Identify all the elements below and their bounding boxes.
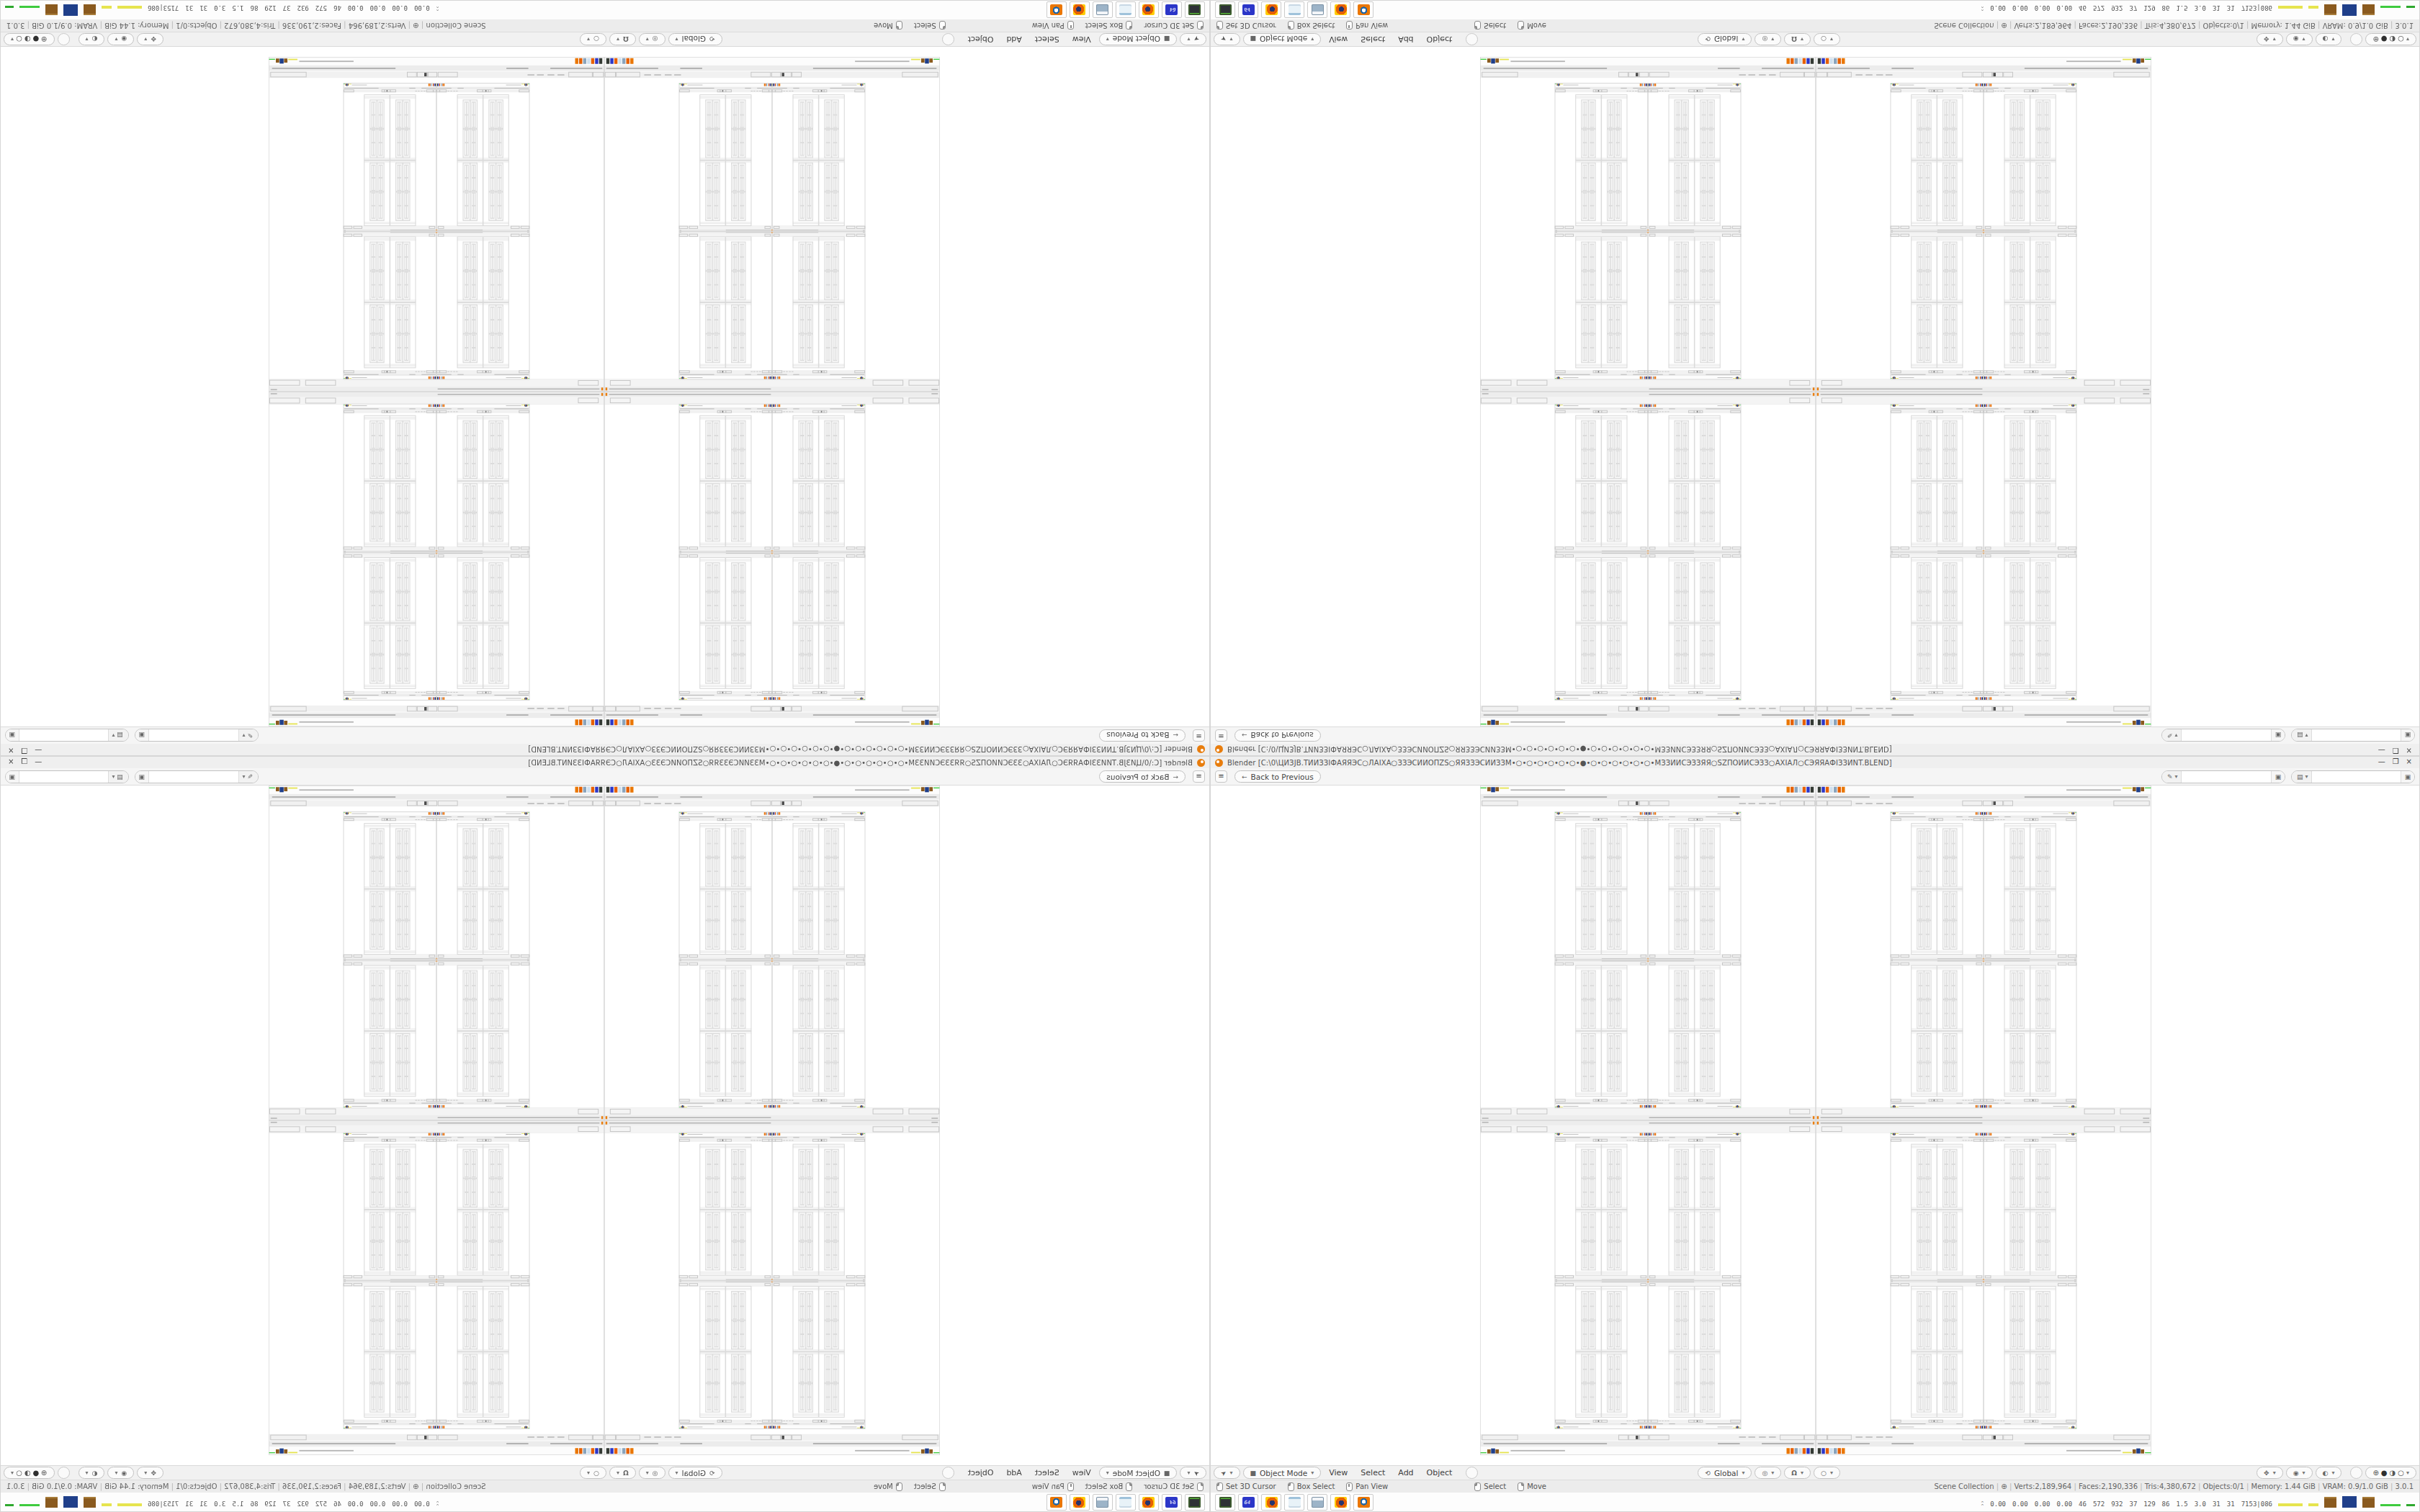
verts-count: Verts:2,189,964 xyxy=(349,22,411,30)
fullscreen-topbar: ≡ ← Back to Previous ✎▾ ▣ ▤▾ ▣ xyxy=(1211,768,2419,786)
viewport-3d[interactable] xyxy=(1,47,1209,726)
datablock-selectors: ✎▾ ▣ ▤▾ ▣ xyxy=(5,729,259,742)
viewport-3d[interactable] xyxy=(1,786,1209,1465)
solid-shading-icon[interactable]: ● xyxy=(32,35,39,43)
firefox-app-icon[interactable] xyxy=(1139,1494,1159,1511)
snap-toggle[interactable]: Ω ▾ xyxy=(1784,1467,1811,1479)
chevron-down-icon: ▾ xyxy=(2406,36,2409,42)
status-bar: Set 3D Cursor Box Select Pan View Select… xyxy=(1,19,1209,32)
menu-icon[interactable]: ≡ xyxy=(1193,770,1205,783)
wireframe-shading-icon[interactable]: ⊕ xyxy=(41,35,47,43)
hint-set-3d-cursor: Set 3D Cursor xyxy=(1144,1482,1204,1491)
tris-count: Tris:4,380,672 xyxy=(224,22,280,30)
pivot-icon: ◎ xyxy=(653,36,658,43)
image-name-field[interactable] xyxy=(2312,730,2401,742)
proportional-editing-toggle[interactable]: ○ ▾ xyxy=(580,33,606,45)
objects-count: Objects:0/1 xyxy=(2198,1482,2244,1490)
chevron-down-icon: ▾ xyxy=(1742,36,1744,42)
chevron-down-icon: ▾ xyxy=(144,36,147,42)
copy-datablock-icon[interactable]: ▣ xyxy=(2271,730,2285,742)
chevron-down-icon: ▾ xyxy=(11,36,14,42)
chevron-down-icon: ▾ xyxy=(676,1470,678,1476)
notepad-app-icon[interactable] xyxy=(1116,1494,1136,1511)
rendered-shading-icon[interactable]: ○ xyxy=(2398,35,2404,43)
overlays-icon: ◉ xyxy=(122,36,127,43)
window-titlebar: Blender [C:\0\ЦИЗЈВ.ТИИЗЗІФАЯЯЭС○ЛАІХА○З… xyxy=(1,757,1209,768)
close-button[interactable]: × xyxy=(2406,747,2412,755)
minimize-button[interactable]: — xyxy=(2378,757,2385,765)
back-arrow-icon: ← xyxy=(1173,773,1178,780)
hint-move: Move xyxy=(874,1482,902,1491)
scene-collection-label: Scene Collection xyxy=(1934,1482,1994,1490)
solid-shading-icon[interactable]: ● xyxy=(32,1469,39,1477)
restore-button[interactable]: ❐ xyxy=(21,757,27,765)
menu-object[interactable]: Object xyxy=(968,35,994,44)
chevron-down-icon: ▾ xyxy=(2406,1470,2409,1476)
image-datablock-selector[interactable]: ▤▾ ▣ xyxy=(5,770,129,783)
overlays-icon: ◉ xyxy=(2293,1470,2299,1477)
image-name-field[interactable] xyxy=(2312,771,2401,783)
shading-mode-group[interactable]: ⊕ ● ◑ ○ ▾ xyxy=(2365,33,2416,45)
screen-capture-app-icon[interactable] xyxy=(1215,2,1235,19)
transform-orientation-dropdown[interactable]: ⟲ Global ▾ xyxy=(1698,33,1752,45)
xray-toggle[interactable]: ◐ ▾ xyxy=(2316,33,2342,45)
brush-name-field[interactable] xyxy=(2182,730,2271,742)
floppy-64-app-icon[interactable] xyxy=(1238,1494,1258,1511)
menu-icon[interactable]: ≡ xyxy=(1193,729,1205,742)
overlays-toggle[interactable]: ◉ ▾ xyxy=(107,33,134,45)
back-arrow-icon: ← xyxy=(1242,732,1247,739)
gizmo-toggle[interactable]: ✥ ▾ xyxy=(137,33,163,45)
chevron-down-icon: ▾ xyxy=(242,732,245,739)
performance-overlay: ⌃⌃ 0.000.00 0.000.00 46572 93237 12986 1… xyxy=(5,4,440,16)
rendered-shading-icon[interactable]: ○ xyxy=(16,1469,22,1477)
gizmo-icon: ✥ xyxy=(151,36,156,43)
xray-icon: ◐ xyxy=(2323,36,2329,43)
blender-app-icon[interactable] xyxy=(1047,1494,1067,1511)
object-mode-icon: ■ xyxy=(1164,1470,1170,1477)
rendered-shading-icon[interactable]: ○ xyxy=(2398,1469,2404,1477)
image-icon: ▤ xyxy=(117,773,123,780)
mode-dropdown[interactable]: ■ Object Mode ▾ xyxy=(1099,33,1178,45)
back-arrow-icon: ← xyxy=(1242,773,1247,780)
shading-mode-group[interactable]: ⊕ ● ◑ ○ ▾ xyxy=(4,1467,55,1479)
recursive-screenshot-pattern xyxy=(269,57,940,726)
xray-icon: ◐ xyxy=(92,36,98,43)
chevron-down-icon: ▾ xyxy=(587,36,590,42)
xray-toggle[interactable]: ◐ ▾ xyxy=(79,33,105,45)
hint-box-select: Box Select xyxy=(1085,1482,1133,1491)
screen-capture-app-icon[interactable] xyxy=(1185,1494,1205,1511)
wireframe-shading-icon[interactable]: ⊕ xyxy=(2372,35,2378,43)
material-shading-icon[interactable]: ◑ xyxy=(24,1469,31,1477)
mode-dropdown[interactable]: ■ Object Mode ▾ xyxy=(1099,1467,1178,1479)
overlays-toggle[interactable]: ◉ ▾ xyxy=(2286,1467,2313,1479)
chevron-down-icon: ▾ xyxy=(646,1470,649,1476)
shading-circle[interactable] xyxy=(58,33,70,45)
pivot-icon: ◎ xyxy=(1762,1470,1767,1477)
window-title: Blender [C:\0\ЦИЗЈВ.ТИИЗЗІФАЯЯЭС○ЛАІХА○З… xyxy=(528,746,1193,754)
overlays-toggle[interactable]: ◉ ▾ xyxy=(107,1467,134,1479)
firefox-app-icon[interactable] xyxy=(1139,2,1159,19)
calculator-app-icon[interactable] xyxy=(1093,1494,1113,1511)
menu-add[interactable]: Add xyxy=(1006,1468,1021,1477)
mode-transfer-circle[interactable] xyxy=(942,1467,954,1479)
brush-name-field[interactable] xyxy=(149,730,238,742)
brush-datablock-selector[interactable]: ✎▾ ▣ xyxy=(2161,770,2285,783)
material-shading-icon[interactable]: ◑ xyxy=(2390,35,2396,43)
copy-datablock-icon[interactable]: ▣ xyxy=(2401,730,2414,742)
hint-move: Move xyxy=(1518,1482,1546,1491)
left-mouse-icon xyxy=(1197,22,1204,30)
blender-window: Blender [C:\0\ЦИЗЈВ.ТИИЗЗІФАЯЯЭС○ЛАІХА○З… xyxy=(1210,0,2420,756)
mode-dropdown[interactable]: ■ Object Mode ▾ xyxy=(1243,1467,1322,1479)
firefox-app-icon[interactable] xyxy=(1070,2,1090,19)
orientation-icon: ⟲ xyxy=(709,1470,715,1477)
copy-datablock-icon[interactable]: ▣ xyxy=(6,730,19,742)
datablock-selectors: ✎▾ ▣ ▤▾ ▣ xyxy=(5,770,259,783)
proportional-icon: ○ xyxy=(1821,1470,1827,1477)
shading-mode-group[interactable]: ⊕ ● ◑ ○ ▾ xyxy=(4,33,55,45)
chevron-down-icon: ▾ xyxy=(86,1470,89,1476)
proportional-editing-toggle[interactable]: ○ ▾ xyxy=(1814,1467,1840,1479)
left-mouse-icon xyxy=(939,22,946,30)
left-mouse-icon xyxy=(1126,22,1132,30)
window-titlebar: Blender [C:\0\ЦИЗЈВ.ТИИЗЗІФАЯЯЭС○ЛАІХА○З… xyxy=(1,744,1209,755)
chevron-down-icon: ▾ xyxy=(1106,1470,1109,1476)
blender-app-icon[interactable] xyxy=(1353,2,1373,19)
firefox-app-icon[interactable] xyxy=(1261,1494,1281,1511)
collapse-chevrons-icon: ⌃⌃ xyxy=(436,1502,440,1508)
tray-brown-block xyxy=(2324,4,2336,15)
wireframe-shading-icon[interactable]: ⊕ xyxy=(41,1469,47,1477)
copy-datablock-icon[interactable]: ▣ xyxy=(2271,771,2285,783)
fullscreen-topbar: ≡ ← Back to Previous ✎▾ ▣ ▤▾ ▣ xyxy=(1,768,1209,786)
left-mouse-icon xyxy=(1288,1482,1294,1491)
status-bar: Set 3D Cursor Box Select Pan View Select… xyxy=(1211,19,2419,32)
tray-brown-block xyxy=(84,1497,96,1508)
overlays-toggle[interactable]: ◉ ▾ xyxy=(2286,33,2313,45)
middle-mouse-icon xyxy=(1067,1482,1074,1491)
rendered-shading-icon[interactable]: ○ xyxy=(16,35,22,43)
tris-count: Tris:4,380,672 xyxy=(2140,22,2196,30)
desktop-taskbar: ⌃⌃ 0.000.00 0.000.00 46572 93237 12986 1… xyxy=(1211,1493,2419,1511)
menu-view[interactable]: View xyxy=(1072,35,1091,44)
active-tool-dropdown[interactable]: ➤ ▾ xyxy=(1214,1467,1240,1479)
snap-toggle[interactable]: Ω ▾ xyxy=(609,33,636,45)
verts-count: Verts:2,189,964 xyxy=(2009,22,2071,30)
chevron-down-icon: ▾ xyxy=(617,36,619,42)
menu-add[interactable]: Add xyxy=(1398,35,1413,44)
notepad-app-icon[interactable] xyxy=(1116,2,1136,19)
copy-datablock-icon[interactable]: ▣ xyxy=(135,771,149,783)
quadrant-bottom-right-original: Blender [C:\0\ЦИЗЈВ.ТИИЗЗІФАЯЯЭС○ЛАІХА○З… xyxy=(1210,756,2420,1512)
chevron-down-icon: ▾ xyxy=(1311,36,1314,42)
material-shading-icon[interactable]: ◑ xyxy=(24,35,31,43)
back-to-previous-button[interactable]: ← Back to Previous xyxy=(1234,729,1321,742)
window-titlebar: Blender [C:\0\ЦИЗЈВ.ТИИЗЗІФАЯЯЭС○ЛАІХА○З… xyxy=(1211,744,2419,755)
chevron-down-icon: ▾ xyxy=(2273,36,2276,42)
quadrant-top-right-flipped: Blender [C:\0\ЦИЗЈВ.ТИИЗЗІФАЯЯЭС○ЛАІХА○З… xyxy=(1210,0,2420,756)
vram-usage: VRAM: 0.9/1.0 GiB xyxy=(2318,1482,2388,1490)
floppy-64-app-icon[interactable] xyxy=(1162,1494,1182,1511)
viewport-3d[interactable] xyxy=(1211,47,2419,726)
collapse-chevrons-icon: ⌃⌃ xyxy=(436,4,440,10)
close-button[interactable]: × xyxy=(8,757,14,765)
performance-overlay: ⌃⌃ 0.000.00 0.000.00 46572 93237 12986 1… xyxy=(5,1496,440,1508)
copy-datablock-icon[interactable]: ▣ xyxy=(2401,771,2414,783)
datablock-selectors: ✎▾ ▣ ▤▾ ▣ xyxy=(2161,729,2415,742)
tray-yellow-bar xyxy=(117,1503,142,1506)
window-controls: — ❐ × xyxy=(2378,747,2416,755)
back-to-previous-button[interactable]: ← Back to Previous xyxy=(1234,770,1321,783)
performance-stats: 0.000.00 0.000.00 46572 93237 12986 1.53… xyxy=(148,1500,430,1508)
faces-count: Faces:2,190,336 xyxy=(2074,1482,2138,1490)
orientation-icon: ⟲ xyxy=(709,36,715,43)
chevron-down-icon: ▾ xyxy=(115,36,117,42)
menu-add[interactable]: Add xyxy=(1006,35,1021,44)
menu-icon[interactable]: ≡ xyxy=(1215,770,1227,783)
object-mode-icon: ■ xyxy=(1250,36,1257,43)
menu-select[interactable]: Select xyxy=(1361,35,1385,44)
transform-orientation-dropdown[interactable]: ⟲ Global ▾ xyxy=(1698,1467,1752,1479)
brush-datablock-selector[interactable]: ✎▾ ▣ xyxy=(2161,729,2285,742)
mode-dropdown[interactable]: ■ Object Mode ▾ xyxy=(1243,33,1322,45)
recursive-screenshot-pattern xyxy=(1480,786,2151,1455)
image-datablock-selector[interactable]: ▤▾ ▣ xyxy=(2291,770,2415,783)
snap-toggle[interactable]: Ω ▾ xyxy=(1784,33,1811,45)
menu-icon[interactable]: ≡ xyxy=(1215,729,1227,742)
floppy-64-app-icon[interactable] xyxy=(1162,2,1182,19)
chevron-down-icon: ▾ xyxy=(1830,1470,1833,1476)
chevron-down-icon: ▾ xyxy=(11,1470,14,1476)
floppy-64-app-icon[interactable] xyxy=(1238,2,1258,19)
objects-count: Objects:0/1 xyxy=(2198,22,2244,30)
menu-object[interactable]: Object xyxy=(1427,1468,1453,1477)
calculator-app-icon[interactable] xyxy=(1307,2,1327,19)
chevron-down-icon: ▾ xyxy=(2175,732,2178,739)
object-mode-icon: ■ xyxy=(1250,1470,1257,1477)
blender-window: Blender [C:\0\ЦИЗЈВ.ТИИЗЗІФАЯЯЭС○ЛАІХА○З… xyxy=(0,0,1210,756)
menu-select[interactable]: Select xyxy=(1361,1468,1385,1477)
mode-transfer-circle[interactable] xyxy=(942,33,954,45)
brush-datablock-selector[interactable]: ✎▾ ▣ xyxy=(135,729,259,742)
shading-circle[interactable] xyxy=(58,1467,70,1479)
fullscreen-topbar: ≡ ← Back to Previous ✎▾ ▣ ▤▾ ▣ xyxy=(1211,726,2419,744)
restore-button[interactable]: ❐ xyxy=(2393,757,2399,765)
tray-yellow-bar xyxy=(117,6,142,9)
menu-add[interactable]: Add xyxy=(1398,1468,1413,1477)
mode-transfer-circle[interactable] xyxy=(1466,33,1478,45)
viewport-header: ➤ ▾ ■ Object Mode ▾ View Select Add Obje… xyxy=(1,32,1209,47)
collection-icon: ⊕ xyxy=(1996,1482,2007,1490)
material-shading-icon[interactable]: ◑ xyxy=(2390,1469,2396,1477)
blender-window: Blender [C:\0\ЦИЗЈВ.ТИИЗЗІФАЯЯЭС○ЛАІХА○З… xyxy=(0,756,1210,1512)
xray-icon: ◐ xyxy=(2323,1470,2329,1477)
image-name-field[interactable] xyxy=(19,730,108,742)
minimize-button[interactable]: — xyxy=(35,747,42,755)
memory-usage: Memory: 1.44 GiB xyxy=(104,1482,174,1490)
hint-select: Select xyxy=(1474,22,1506,30)
tray-green-bar xyxy=(2380,6,2401,8)
restore-button[interactable]: ❐ xyxy=(2393,747,2399,755)
brush-name-field[interactable] xyxy=(149,771,238,783)
menu-view[interactable]: View xyxy=(1072,1468,1091,1477)
pivot-point-dropdown[interactable]: ◎ ▾ xyxy=(639,33,665,45)
scene-collection-label: Scene Collection xyxy=(1934,22,1994,30)
menu-view[interactable]: View xyxy=(1329,35,1348,44)
menu-object[interactable]: Object xyxy=(1427,35,1453,44)
window-titlebar: Blender [C:\0\ЦИЗЈВ.ТИИЗЗІФАЯЯЭС○ЛАІХА○З… xyxy=(1211,757,2419,768)
back-to-previous-button[interactable]: ← Back to Previous xyxy=(1099,770,1186,783)
image-name-field[interactable] xyxy=(19,771,108,783)
collection-icon: ⊕ xyxy=(1996,22,2007,30)
pivot-icon: ◎ xyxy=(653,1470,658,1477)
chevron-down-icon: ▾ xyxy=(1742,1470,1744,1476)
image-datablock-selector[interactable]: ▤▾ ▣ xyxy=(5,729,129,742)
tray-yellow-bar xyxy=(2308,1503,2318,1506)
hint-move: Move xyxy=(1518,22,1546,30)
tray-green-bar xyxy=(5,6,14,8)
menu-object[interactable]: Object xyxy=(968,1468,994,1477)
verts-count: Verts:2,189,964 xyxy=(2009,1482,2071,1490)
hint-pan-view: Pan View xyxy=(1346,1482,1388,1491)
copy-datablock-icon[interactable]: ▣ xyxy=(6,771,19,783)
xray-toggle[interactable]: ◐ ▾ xyxy=(2316,1467,2342,1479)
minimize-button[interactable]: — xyxy=(2378,747,2385,755)
scene-statistics: Scene Collection ⊕ Verts:2,189,964 Faces… xyxy=(1934,22,2414,30)
gizmo-toggle[interactable]: ✥ ▾ xyxy=(2257,33,2283,45)
minimize-button[interactable]: — xyxy=(35,757,42,765)
screen-capture-app-icon[interactable] xyxy=(1215,1494,1235,1511)
kaleidoscope-screenshot: Blender [C:\0\ЦИЗЈВ.ТИИЗЗІФАЯЯЭС○ЛАІХА○З… xyxy=(0,0,2420,1512)
screen-capture-app-icon[interactable] xyxy=(1185,2,1205,19)
memory-usage: Memory: 1.44 GiB xyxy=(2246,1482,2316,1490)
cursor-tool-icon: ➤ xyxy=(1219,1468,1228,1477)
image-datablock-selector[interactable]: ▤▾ ▣ xyxy=(2291,729,2415,742)
overlays-icon: ◉ xyxy=(122,1470,127,1477)
menu-select[interactable]: Select xyxy=(1035,1468,1059,1477)
chevron-down-icon: ▾ xyxy=(115,1470,117,1476)
mode-transfer-circle[interactable] xyxy=(1466,1467,1478,1479)
gizmo-icon: ✥ xyxy=(2264,36,2269,43)
brush-icon: ✎ xyxy=(247,732,253,739)
quadrant-bottom-left-mirrored: Blender [C:\0\ЦИЗЈВ.ТИИЗЗІФАЯЯЭС○ЛАІХА○З… xyxy=(0,756,1210,1512)
chevron-down-icon: ▾ xyxy=(1771,1470,1774,1476)
hint-pan-view: Pan View xyxy=(1032,22,1074,30)
recursive-screenshot-pattern xyxy=(269,786,940,1455)
menu-select[interactable]: Select xyxy=(1035,35,1059,44)
chevron-down-icon: ▾ xyxy=(112,732,115,739)
pivot-point-dropdown[interactable]: ◎ ▾ xyxy=(639,1467,665,1479)
performance-stats: 0.000.00 0.000.00 46572 93237 12986 1.53… xyxy=(1990,1500,2272,1508)
tris-count: Tris:4,380,672 xyxy=(2140,1482,2196,1490)
wireframe-shading-icon[interactable]: ⊕ xyxy=(2372,1469,2378,1477)
proportional-editing-toggle[interactable]: ○ ▾ xyxy=(580,1467,606,1479)
brush-name-field[interactable] xyxy=(2182,771,2271,783)
tris-count: Tris:4,380,672 xyxy=(224,1482,280,1490)
active-tool-dropdown[interactable]: ➤ ▾ xyxy=(1180,33,1206,45)
pivot-point-dropdown[interactable]: ◎ ▾ xyxy=(1754,33,1781,45)
notepad-app-icon[interactable] xyxy=(1284,1494,1304,1511)
left-mouse-icon xyxy=(1474,22,1481,30)
quadrant-top-left-flipped: Blender [C:\0\ЦИЗЈВ.ТИИЗЗІФАЯЯЭС○ЛАІХА○З… xyxy=(0,0,1210,756)
hint-select: Select xyxy=(914,22,946,30)
tray-green-bar xyxy=(5,1504,14,1506)
tray-green-bar xyxy=(2406,1504,2415,1506)
restore-button[interactable]: ❐ xyxy=(21,747,27,755)
firefox-app-icon[interactable] xyxy=(1261,2,1281,19)
performance-stats: 0.000.00 0.000.00 46572 93237 12986 1.53… xyxy=(148,4,430,12)
tray-brown-block xyxy=(2362,1497,2375,1508)
close-button[interactable]: × xyxy=(8,747,14,755)
shading-mode-group[interactable]: ⊕ ● ◑ ○ ▾ xyxy=(2365,1467,2416,1479)
overlays-icon: ◉ xyxy=(2293,36,2299,43)
blender-logo-icon xyxy=(1197,746,1205,754)
collection-icon: ⊕ xyxy=(413,22,423,30)
left-mouse-icon xyxy=(939,1482,946,1491)
memory-usage: Memory: 1.44 GiB xyxy=(2246,22,2316,30)
back-to-previous-button[interactable]: ← Back to Previous xyxy=(1099,729,1186,742)
menu-view[interactable]: View xyxy=(1329,1468,1348,1477)
viewport-3d[interactable] xyxy=(1211,786,2419,1465)
solid-shading-icon[interactable]: ● xyxy=(2381,35,2388,43)
objects-count: Objects:0/1 xyxy=(176,22,222,30)
chevron-down-icon: ▾ xyxy=(587,1470,590,1476)
calculator-app-icon[interactable] xyxy=(1307,1494,1327,1511)
xray-toggle[interactable]: ◐ ▾ xyxy=(79,1467,105,1479)
close-button[interactable]: × xyxy=(2406,757,2412,765)
cursor-tool-icon: ➤ xyxy=(1219,35,1228,44)
chevron-down-icon: ▾ xyxy=(144,1470,147,1476)
blender-app-icon[interactable] xyxy=(1047,2,1067,19)
snap-toggle[interactable]: Ω ▾ xyxy=(609,1467,636,1479)
gizmo-toggle[interactable]: ✥ ▾ xyxy=(2257,1467,2283,1479)
calculator-app-icon[interactable] xyxy=(1093,2,1113,19)
transform-orientation-dropdown[interactable]: ⟲ Global ▾ xyxy=(668,33,722,45)
firefox-app-icon[interactable] xyxy=(1070,1494,1090,1511)
brush-datablock-selector[interactable]: ✎▾ ▣ xyxy=(135,770,259,783)
chevron-down-icon: ▾ xyxy=(2273,1470,2276,1476)
gizmo-toggle[interactable]: ✥ ▾ xyxy=(137,1467,163,1479)
orientation-icon: ⟲ xyxy=(1705,36,1711,43)
solid-shading-icon[interactable]: ● xyxy=(2381,1469,2388,1477)
transform-orientation-dropdown[interactable]: ⟲ Global ▾ xyxy=(668,1467,722,1479)
left-mouse-icon xyxy=(1216,1482,1223,1491)
firefox-app-icon[interactable] xyxy=(1330,1494,1350,1511)
firefox-app-icon[interactable] xyxy=(1330,2,1350,19)
copy-datablock-icon[interactable]: ▣ xyxy=(135,730,149,742)
notepad-app-icon[interactable] xyxy=(1284,2,1304,19)
desktop-taskbar: ⌃⌃ 0.000.00 0.000.00 46572 93237 12986 1… xyxy=(1211,1,2419,19)
shading-circle[interactable] xyxy=(2350,33,2362,45)
pivot-point-dropdown[interactable]: ◎ ▾ xyxy=(1754,1467,1781,1479)
hint-box-select: Box Select xyxy=(1288,1482,1335,1491)
active-tool-dropdown[interactable]: ➤ ▾ xyxy=(1180,1467,1206,1479)
magnet-icon: Ω xyxy=(1791,1470,1797,1477)
hint-pan-view: Pan View xyxy=(1346,22,1388,30)
blender-app-icon[interactable] xyxy=(1353,1494,1373,1511)
chevron-down-icon: ▾ xyxy=(2331,1470,2334,1476)
active-tool-dropdown[interactable]: ➤ ▾ xyxy=(1214,33,1240,45)
chevron-down-icon: ▾ xyxy=(1106,36,1109,42)
magnet-icon: Ω xyxy=(623,36,629,43)
proportional-editing-toggle[interactable]: ○ ▾ xyxy=(1814,33,1840,45)
shading-circle[interactable] xyxy=(2350,1467,2362,1479)
left-mouse-icon xyxy=(1474,1482,1481,1491)
chevron-down-icon: ▾ xyxy=(676,36,678,42)
brush-icon: ✎ xyxy=(247,773,253,780)
